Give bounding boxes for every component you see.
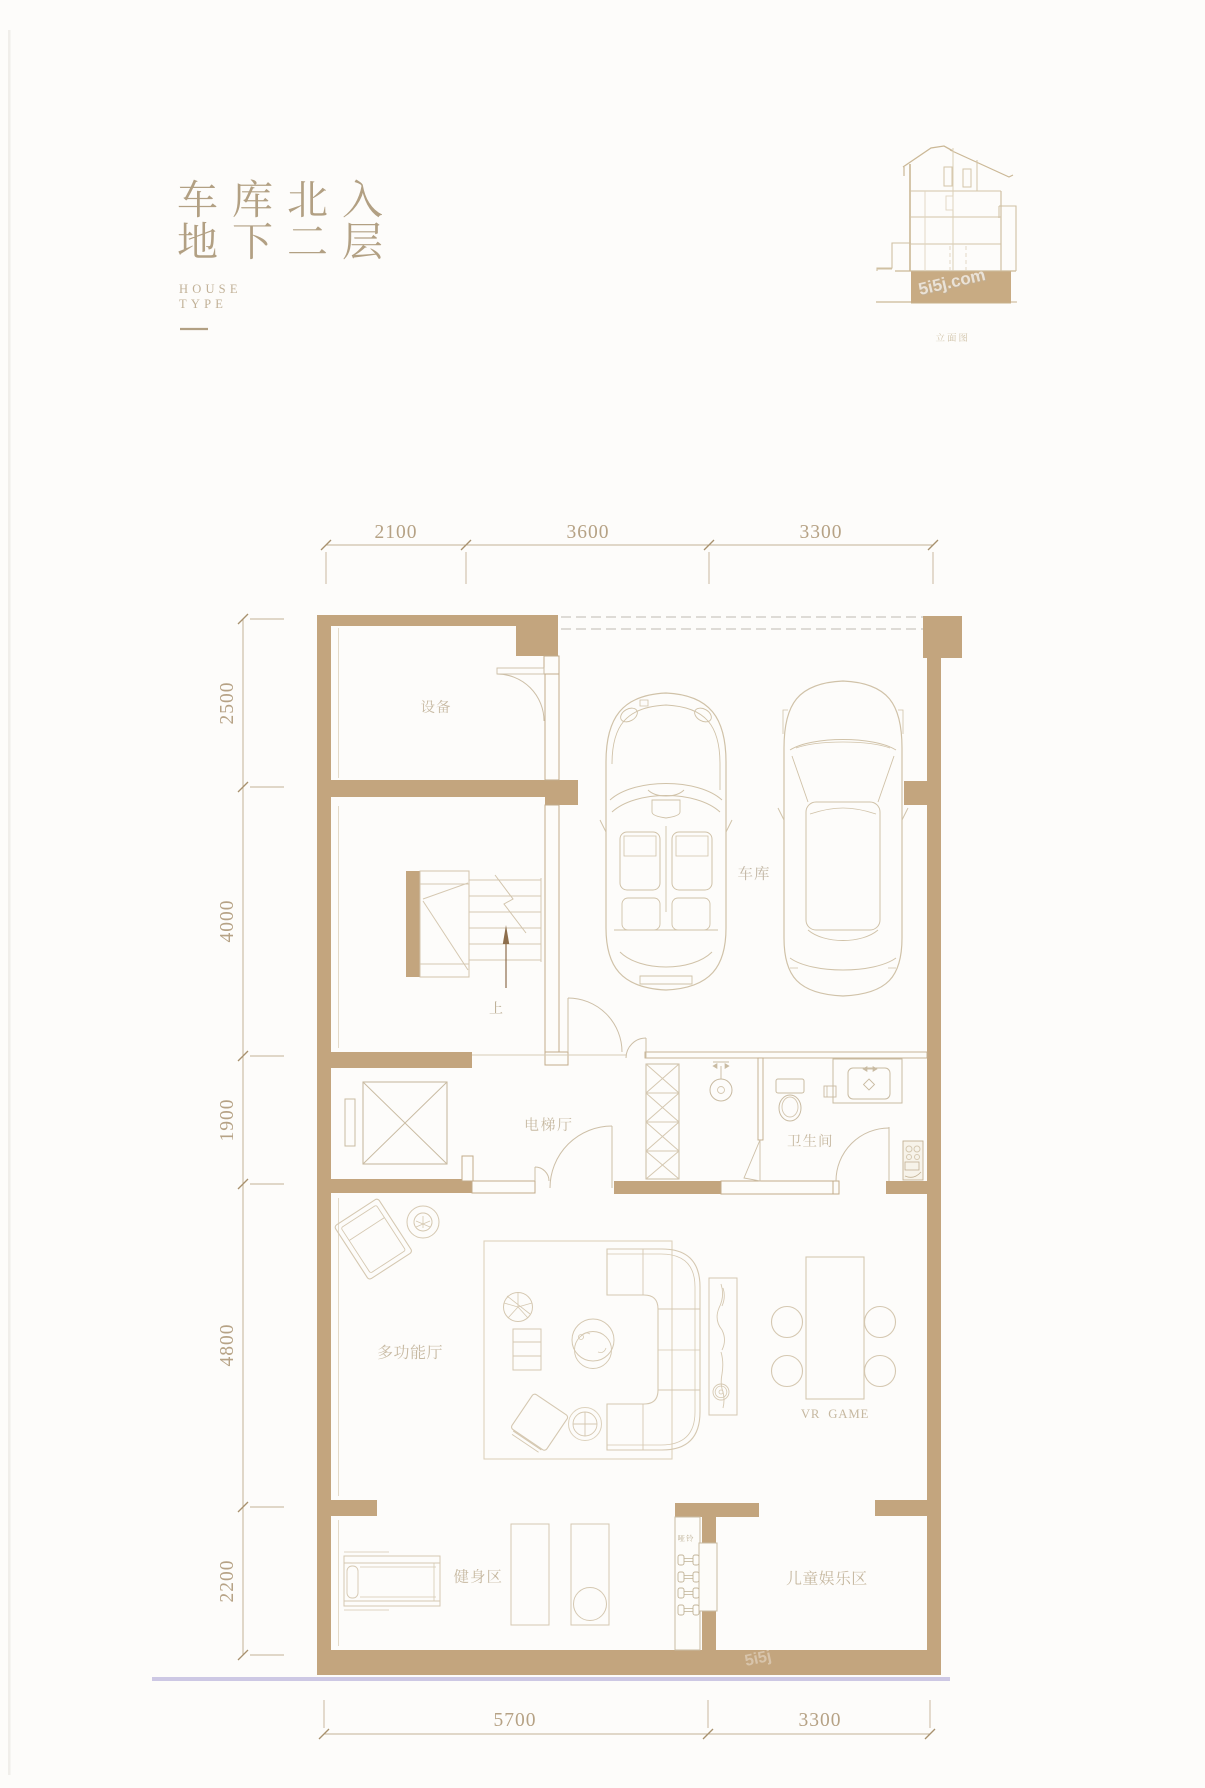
svg-text:5700: 5700 bbox=[494, 1710, 537, 1731]
svg-text:2100: 2100 bbox=[375, 522, 418, 543]
svg-text:3300: 3300 bbox=[800, 522, 843, 543]
svg-text:3300: 3300 bbox=[799, 1710, 842, 1731]
svg-text:3600: 3600 bbox=[567, 522, 610, 543]
svg-text:2500: 2500 bbox=[217, 682, 238, 725]
svg-text:4800: 4800 bbox=[217, 1324, 238, 1367]
svg-text:VR GAME: VR GAME bbox=[801, 1407, 869, 1421]
svg-text:4000: 4000 bbox=[217, 900, 238, 943]
svg-text:TYPE: TYPE bbox=[179, 297, 227, 311]
svg-text:1900: 1900 bbox=[217, 1099, 238, 1142]
svg-text:HOUSE: HOUSE bbox=[179, 282, 242, 296]
svg-text:2200: 2200 bbox=[217, 1560, 238, 1603]
